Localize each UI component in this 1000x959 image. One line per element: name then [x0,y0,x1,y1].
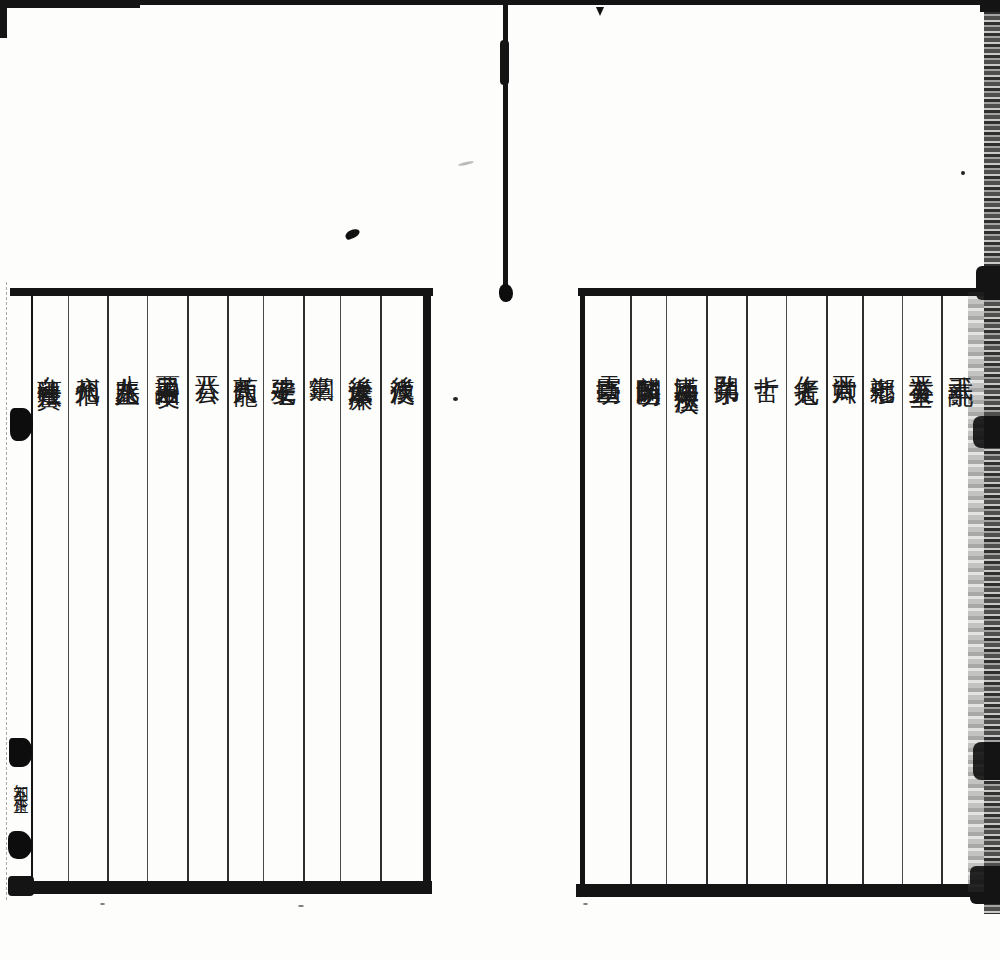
gutter-fold-end-blob [499,284,513,302]
right-page-column-rule-4 [826,296,828,884]
colophon-top-blob [9,738,32,767]
scratch-mark [458,160,474,166]
ink-mark-tick [344,227,361,241]
entry-column: 晋八公 [192,356,222,896]
entry-column: 後漢八使 [387,356,417,896]
right-page-left-border [580,288,585,897]
left-page-column-rule-7 [147,296,148,881]
left-page-column-rule-4 [263,296,264,881]
entry-column: 荀氏八龍 [230,356,260,896]
entry-column: 八裴比八王 [112,356,142,896]
scan-top-edge-thick-segment [0,0,140,8]
left-page-column-rule-6 [187,296,189,881]
left-page-column-rule-2 [340,296,341,881]
right-page-column-rule-5 [786,296,787,884]
entry-column: 鄭七穆 [867,356,897,896]
scan-left-edge-mark [0,4,7,38]
entry-column: 麒麟閣功臣 [633,356,663,896]
scan-left-dashed-edge [6,282,7,900]
gutter-fold-bulge [500,40,509,85]
left-page-column-rule-3 [303,296,305,881]
colophon-bottom-blob [8,876,34,896]
colophon-mid-blob [8,831,32,859]
ink-speck-right-page [961,171,965,175]
right-page-top-border [578,288,988,296]
entry-column: 賈謐二十四友 [152,356,182,896]
colophon-text: 知不足齋正 [11,772,31,882]
left-page-left-border [31,294,33,884]
entry-column: 建安七子 [268,356,298,896]
left-page-right-border [423,288,431,894]
left-page-column-rule-5 [227,296,229,881]
right-page-column-rule-3 [862,296,864,884]
right-page-column-rule-7 [706,296,708,884]
entry-column: 十哲 [751,356,781,896]
right-edge-top-corner [980,0,1000,12]
entry-column: 孔門弟子 [711,356,741,896]
entry-column: 晋六卿 [829,356,859,896]
scan-top-edge-line [0,0,1000,5]
left-page-column-rule-8 [107,296,109,881]
left-edge-binding-blob [10,408,33,441]
right-page-column-rule-2 [902,296,903,884]
bottom-speck-3 [583,903,588,905]
ink-speck-gutter [453,397,458,401]
entry-column: 漢功臣十八侯位次 [671,356,701,896]
right-page-column-rule-8 [666,296,667,884]
entry-column: 兖州八伯 [72,356,102,896]
bottom-speck-2 [298,905,304,907]
entry-column: 武王十亂 [945,356,975,896]
right-page-column-rule-9 [630,296,632,884]
entry-column: 黨錮 [306,356,336,896]
left-page-column-rule-9 [68,296,69,881]
right-page-column-rule-1 [941,296,943,884]
entry-column: 雲臺功臣 [593,356,623,896]
left-page-column-rule-1 [380,296,382,881]
right-page-column-rule-6 [746,296,748,884]
entry-column: 晋文公五士 [906,356,936,896]
entry-column: 白蓮社十八賢 [34,356,64,896]
entry-column: 作者七人 [791,356,821,896]
scanned-book-spread: 後漢八使 後漢六孝廉 黨錮 建安七子 荀氏八龍 晋八公 賈謐二十四友 八裴比八王… [0,0,1000,959]
left-page-top-border [10,288,433,296]
ink-mark-triangle [596,7,604,16]
bottom-speck-1 [100,903,105,905]
entry-column: 後漢六孝廉 [345,356,375,896]
